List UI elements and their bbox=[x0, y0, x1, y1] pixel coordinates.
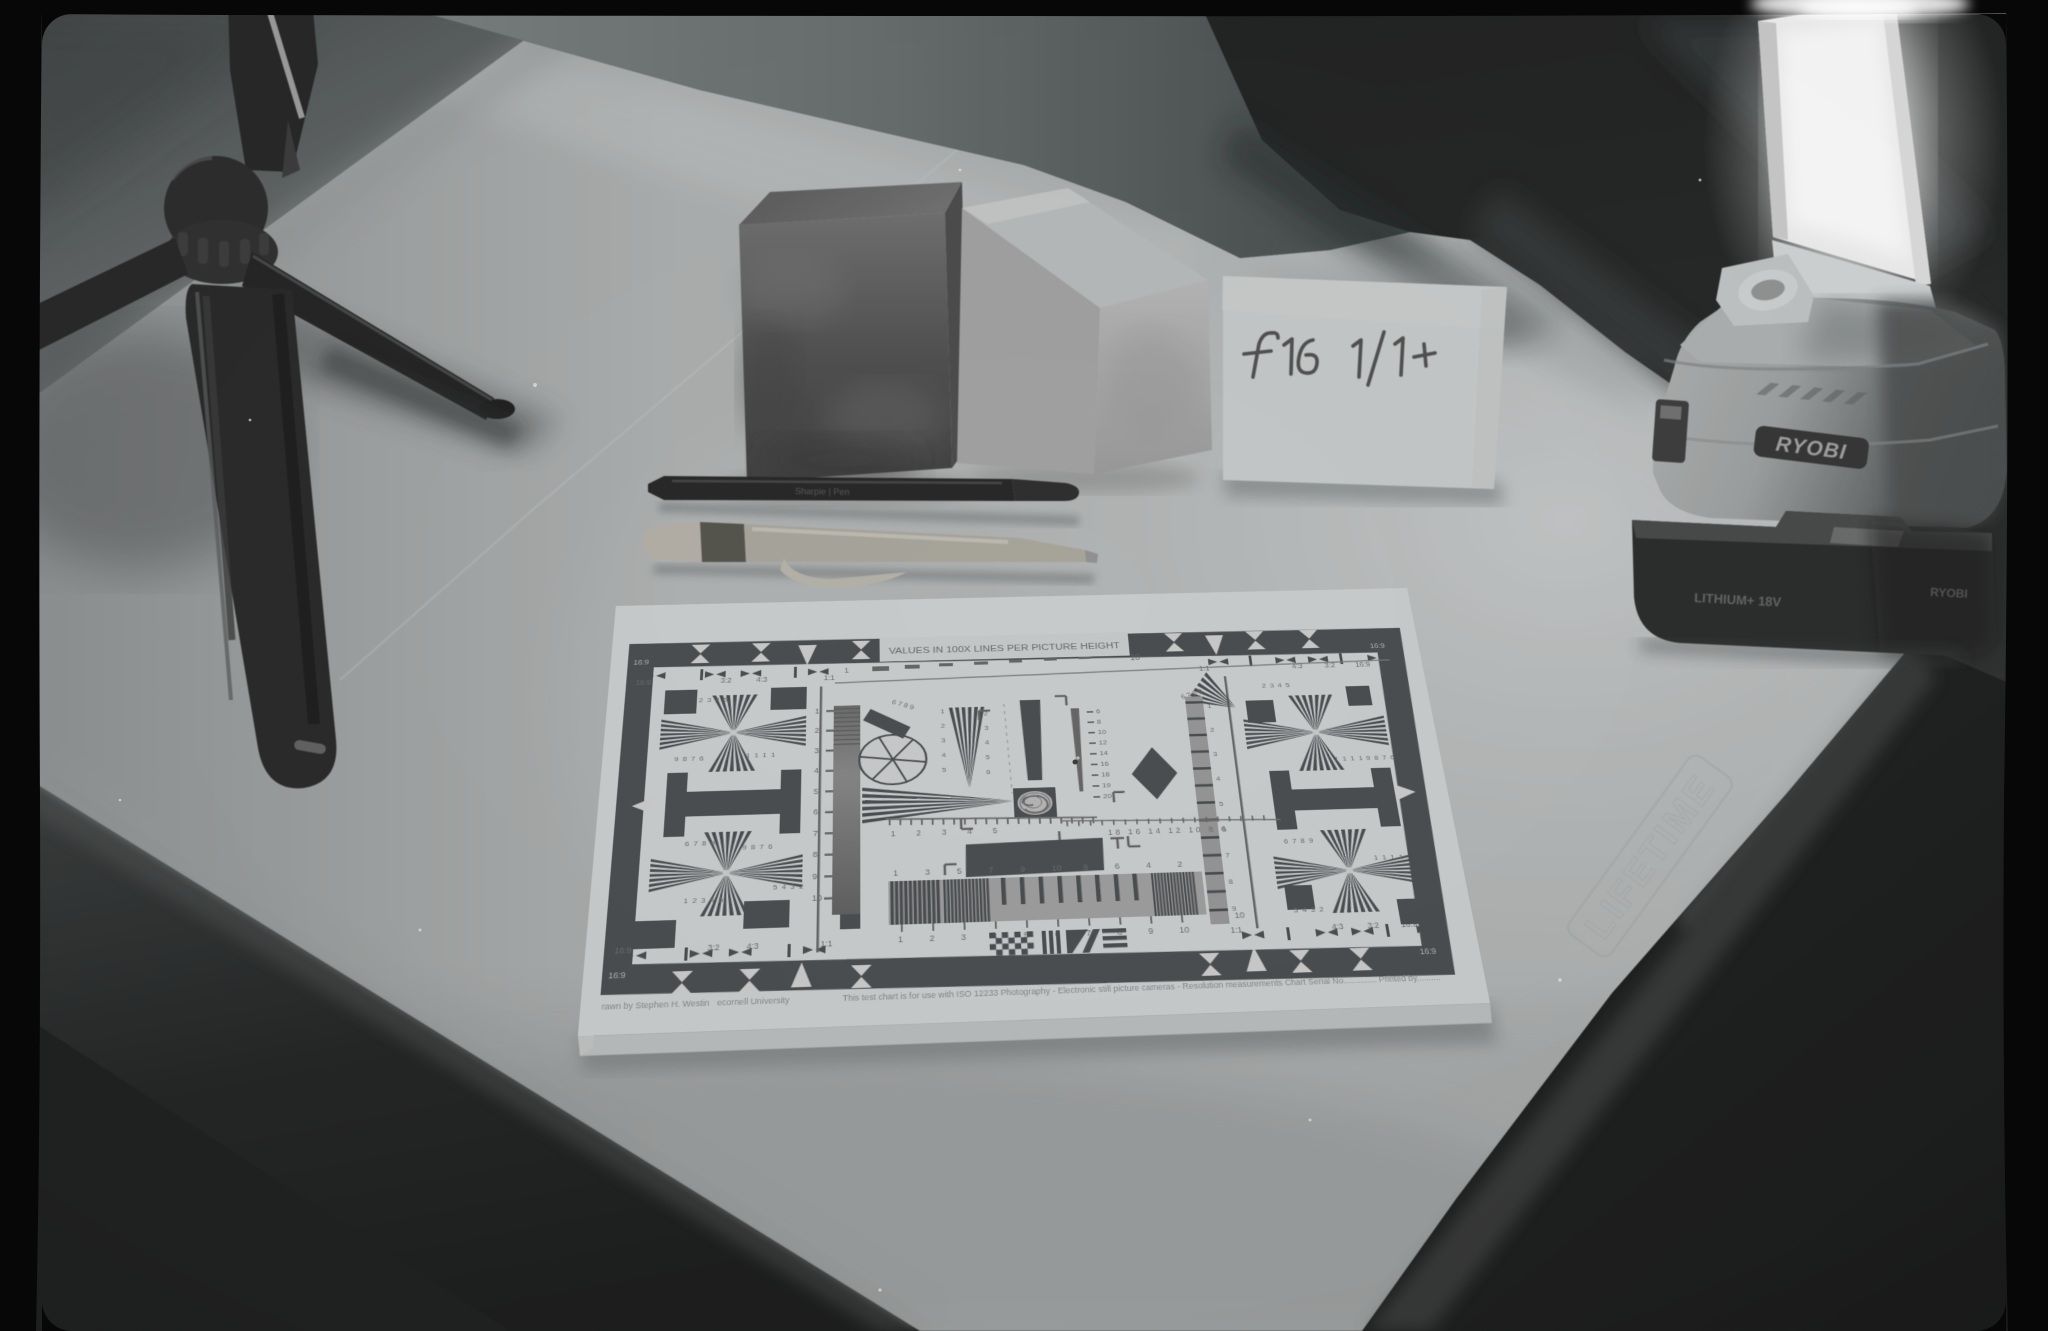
svg-text:1 2 3 4 5: 1 2 3 4 5 bbox=[683, 896, 724, 905]
svg-text:5: 5 bbox=[942, 767, 947, 774]
svg-text:16:9: 16:9 bbox=[1370, 643, 1386, 650]
svg-text:2: 2 bbox=[1177, 860, 1183, 869]
svg-text:Sharpie | Pen: Sharpie | Pen bbox=[795, 486, 850, 497]
svg-text:4:3: 4:3 bbox=[746, 943, 759, 952]
svg-text:4:3: 4:3 bbox=[756, 677, 768, 684]
svg-text:4:3: 4:3 bbox=[1331, 923, 1344, 931]
svg-text:3:2: 3:2 bbox=[1367, 922, 1380, 930]
svg-text:10: 10 bbox=[1051, 864, 1061, 873]
svg-text:1: 1 bbox=[893, 869, 898, 878]
svg-text:7: 7 bbox=[988, 866, 993, 875]
svg-text:2: 2 bbox=[814, 727, 819, 735]
svg-text:1 1 1 1: 1 1 1 1 bbox=[1373, 853, 1405, 862]
svg-text:16:9: 16:9 bbox=[1419, 948, 1437, 957]
svg-text:5 4 3 2: 5 4 3 2 bbox=[773, 883, 805, 892]
svg-text:9: 9 bbox=[1148, 927, 1154, 936]
svg-text:5: 5 bbox=[957, 867, 962, 876]
svg-text:18: 18 bbox=[1101, 771, 1111, 779]
svg-text:3: 3 bbox=[925, 868, 930, 877]
svg-text:6 7 8 9: 6 7 8 9 bbox=[1283, 837, 1314, 846]
svg-text:3: 3 bbox=[961, 933, 966, 942]
svg-text:2 3 4 5: 2 3 4 5 bbox=[699, 697, 729, 705]
svg-text:2 3 4 5: 2 3 4 5 bbox=[1261, 682, 1291, 690]
svg-text:9: 9 bbox=[812, 872, 817, 881]
svg-text:16:9: 16:9 bbox=[614, 947, 632, 956]
svg-text:16:9: 16:9 bbox=[633, 659, 649, 666]
svg-text:7: 7 bbox=[813, 829, 818, 838]
svg-text:1:1: 1:1 bbox=[820, 940, 832, 949]
svg-text:9 8 7 6: 9 8 7 6 bbox=[742, 843, 774, 852]
svg-text:4: 4 bbox=[942, 752, 947, 759]
svg-text:6: 6 bbox=[986, 769, 991, 776]
svg-text:1: 1 bbox=[844, 667, 849, 675]
svg-text:8: 8 bbox=[1083, 863, 1089, 872]
svg-text:1: 1 bbox=[898, 935, 903, 944]
svg-text:2: 2 bbox=[941, 723, 946, 730]
svg-text:16:9: 16:9 bbox=[608, 972, 626, 981]
svg-text:10: 10 bbox=[1234, 911, 1245, 920]
svg-text:6: 6 bbox=[1114, 862, 1120, 871]
svg-text:3: 3 bbox=[814, 747, 819, 755]
svg-text:10: 10 bbox=[1097, 729, 1106, 736]
svg-text:6: 6 bbox=[813, 808, 818, 817]
svg-text:6 7 8 9: 6 7 8 9 bbox=[684, 840, 716, 849]
svg-text:3:2: 3:2 bbox=[1324, 662, 1336, 669]
svg-text:RYOBI: RYOBI bbox=[1930, 585, 1968, 601]
svg-text:1:1: 1:1 bbox=[1230, 927, 1243, 935]
svg-text:10: 10 bbox=[1179, 926, 1190, 936]
svg-text:1:1: 1:1 bbox=[824, 675, 835, 682]
svg-text:4: 4 bbox=[985, 739, 990, 746]
svg-text:4: 4 bbox=[814, 767, 819, 775]
svg-text:9: 9 bbox=[1020, 865, 1025, 874]
svg-text:10: 10 bbox=[812, 894, 822, 903]
svg-text:2: 2 bbox=[916, 830, 921, 838]
svg-text:1: 1 bbox=[940, 708, 945, 715]
svg-text:16: 16 bbox=[1100, 760, 1110, 767]
svg-text:16:9: 16:9 bbox=[1355, 662, 1371, 669]
svg-text:19: 19 bbox=[1102, 782, 1112, 790]
svg-text:1:1: 1:1 bbox=[1199, 666, 1211, 673]
svg-text:5 4 3 2: 5 4 3 2 bbox=[1293, 906, 1325, 915]
svg-text:3: 3 bbox=[984, 725, 989, 732]
svg-text:4: 4 bbox=[1146, 861, 1152, 870]
svg-text:3:2: 3:2 bbox=[720, 678, 732, 685]
svg-text:9 8 7 6: 9 8 7 6 bbox=[1366, 754, 1397, 762]
svg-text:8: 8 bbox=[813, 851, 818, 860]
svg-text:20: 20 bbox=[1103, 793, 1113, 801]
svg-text:1 1 1 1: 1 1 1 1 bbox=[746, 752, 777, 760]
svg-text:9 8 7 6: 9 8 7 6 bbox=[674, 755, 705, 763]
svg-text:1: 1 bbox=[815, 707, 820, 715]
svg-text:3: 3 bbox=[941, 737, 946, 744]
svg-text:1: 1 bbox=[891, 831, 896, 839]
svg-text:5: 5 bbox=[985, 754, 990, 761]
svg-text:16:9: 16:9 bbox=[635, 680, 651, 687]
svg-text:5: 5 bbox=[993, 828, 998, 836]
svg-text:3:2: 3:2 bbox=[707, 944, 720, 953]
svg-text:3: 3 bbox=[942, 829, 947, 837]
svg-text:1 1 1 1: 1 1 1 1 bbox=[1334, 755, 1365, 763]
svg-text:12: 12 bbox=[1098, 739, 1108, 746]
svg-text:14: 14 bbox=[1099, 750, 1109, 757]
svg-text:5: 5 bbox=[814, 788, 819, 797]
svg-text:2: 2 bbox=[929, 934, 934, 943]
svg-text:10: 10 bbox=[1130, 653, 1142, 662]
